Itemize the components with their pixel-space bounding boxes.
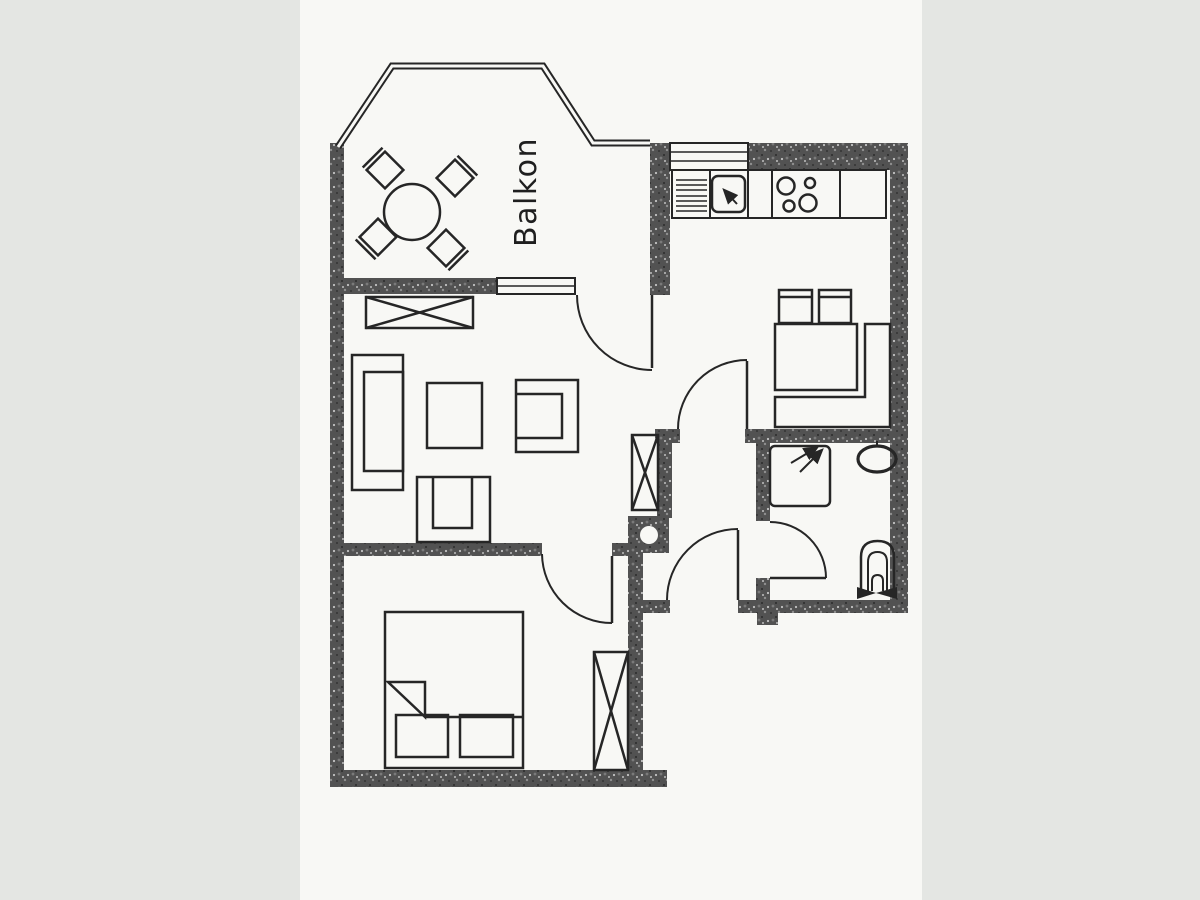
- stairwell-wall-stub: [757, 613, 778, 625]
- entry-wall-left: [643, 600, 670, 613]
- bathroom-wall-lower: [756, 578, 770, 613]
- right-exterior-wall: [890, 143, 908, 612]
- bedroom-top-wall-piece: [612, 543, 630, 556]
- bathroom-wall-upper: [756, 443, 770, 521]
- bottom-exterior-wall: [330, 770, 667, 787]
- floor-plan-svg: Balkon: [0, 0, 1200, 900]
- kitchen-window: [670, 143, 748, 170]
- shaft-pipe: [640, 526, 658, 544]
- kitchen-left-wall: [650, 143, 670, 295]
- bedroom-top-wall: [330, 543, 542, 556]
- left-exterior-wall: [330, 143, 344, 787]
- hall-top-wall-right: [745, 429, 908, 443]
- bedroom-right-wall: [628, 553, 643, 778]
- balcony-label: Balkon: [509, 137, 544, 247]
- balcony-living-wall: [341, 278, 497, 294]
- kitchen-top-wall: [748, 143, 908, 170]
- plan-root: Balkon: [0, 0, 1200, 900]
